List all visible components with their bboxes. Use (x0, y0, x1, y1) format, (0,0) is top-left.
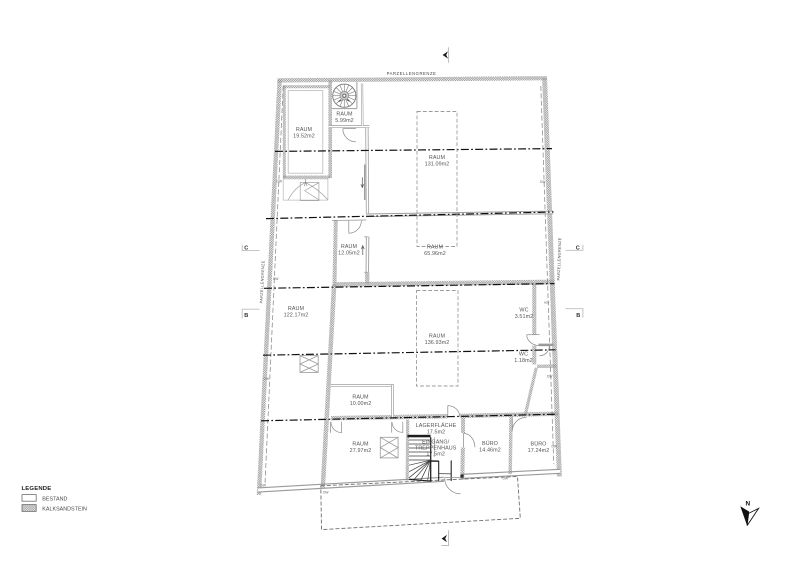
svg-text:EINGANG/TREPPENHAUS17.5m2: EINGANG/TREPPENHAUS17.5m2 (415, 440, 457, 458)
svg-text:BÜRO14.46m2: BÜRO14.46m2 (479, 440, 501, 454)
svg-text:N: N (746, 501, 751, 508)
svg-text:BESTAND: BESTAND (42, 497, 67, 503)
svg-text:WC3.51m2: WC3.51m2 (515, 307, 534, 320)
svg-text:DW: DW (547, 375, 553, 379)
svg-text:RAUM5.99m2: RAUM5.99m2 (335, 111, 354, 124)
svg-text:RAUM122.17m2: RAUM122.17m2 (284, 306, 309, 319)
svg-text:RAUM27.97m2: RAUM27.97m2 (350, 442, 372, 455)
svg-text:LAGERFLÄCHE17.5m2: LAGERFLÄCHE17.5m2 (416, 422, 457, 435)
svg-text:DW: DW (503, 477, 509, 481)
svg-text:LEGENDE: LEGENDE (22, 486, 52, 492)
svg-text:PARZELLENGRENZE: PARZELLENGRENZE (556, 237, 563, 280)
svg-text:RAUM136.93m2: RAUM136.93m2 (425, 333, 450, 346)
svg-text:C: C (576, 245, 580, 251)
svg-text:600: 600 (544, 301, 549, 305)
svg-text:DW: DW (277, 180, 283, 184)
svg-text:DW: DW (552, 445, 558, 449)
svg-text:RAUM19.52m2: RAUM19.52m2 (293, 127, 315, 140)
svg-text:B: B (576, 313, 580, 319)
svg-text:DW: DW (540, 180, 546, 184)
svg-text:KALKSANDSTEIN: KALKSANDSTEIN (42, 507, 87, 513)
svg-text:RAUM12.05m2: RAUM12.05m2 (338, 244, 360, 257)
svg-text:PARZELLENGRENZE: PARZELLENGRENZE (258, 260, 265, 303)
svg-text:RAUM65.96m2: RAUM65.96m2 (424, 244, 446, 257)
svg-text:B: B (244, 313, 248, 319)
svg-text:C: C (244, 245, 248, 251)
svg-text:DW: DW (323, 491, 329, 495)
svg-text:RAUM131.09m2: RAUM131.09m2 (425, 155, 450, 168)
svg-text:DW: DW (273, 277, 279, 281)
svg-text:RAUM10.00m2: RAUM10.00m2 (350, 394, 372, 407)
svg-text:BÜRO17.24m2: BÜRO17.24m2 (528, 440, 550, 454)
svg-text:WC1.18m2: WC1.18m2 (514, 351, 533, 364)
svg-text:DW: DW (261, 484, 267, 488)
svg-text:PARZELLENGRENZE: PARZELLENGRENZE (387, 71, 437, 76)
svg-text:DW: DW (264, 377, 270, 381)
